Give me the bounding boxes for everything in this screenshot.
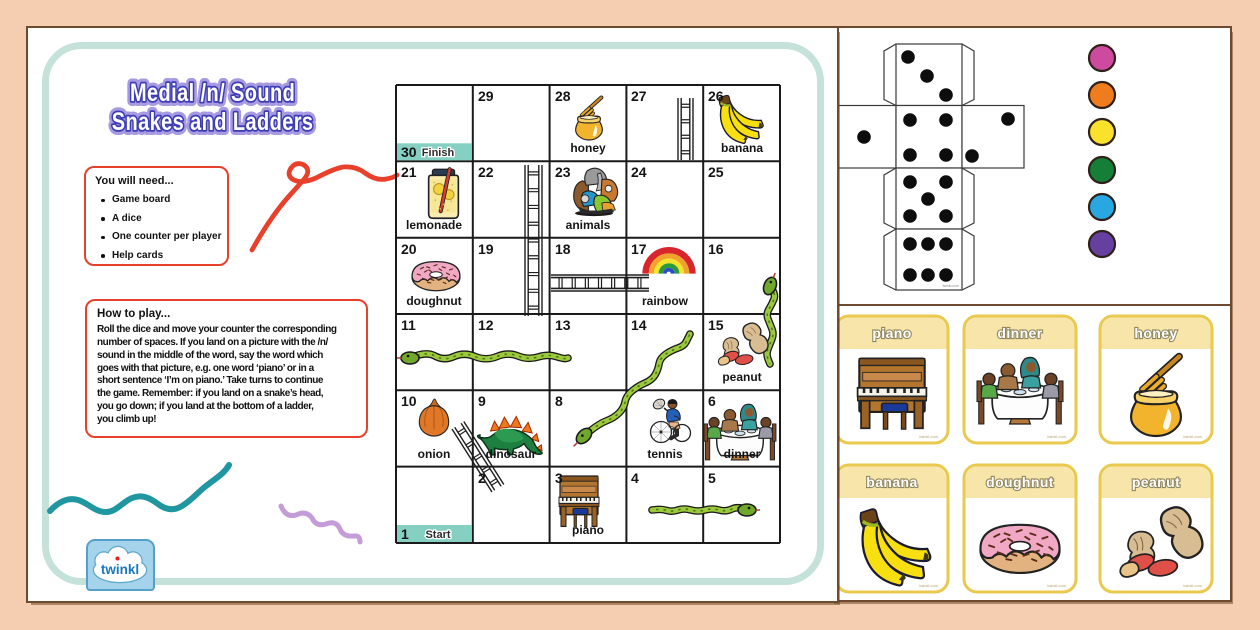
svg-text:2: 2 [478,470,486,486]
svg-text:26: 26 [708,88,724,104]
svg-text:18: 18 [555,241,571,257]
svg-text:Medial /n/ Sound: Medial /n/ Sound [130,79,295,107]
svg-text:twinkl.com: twinkl.com [919,434,938,439]
svg-text:doughnut: doughnut [406,294,461,308]
svg-text:10: 10 [401,393,417,409]
svg-text:23: 23 [555,164,571,180]
svg-text:5: 5 [708,470,716,486]
svg-text:29: 29 [478,88,494,104]
svg-text:twinkl.com: twinkl.com [1047,583,1066,588]
svg-text:banana: banana [866,474,917,490]
svg-text:8: 8 [555,393,563,409]
svg-text:27: 27 [631,88,647,104]
svg-text:1: 1 [401,526,409,542]
svg-text:24: 24 [631,164,647,180]
svg-text:dinner: dinner [997,325,1042,341]
svg-text:piano: piano [872,325,911,341]
svg-text:Start: Start [425,529,450,541]
svg-text:15: 15 [708,317,724,333]
svg-text:dinner: dinner [724,447,761,461]
svg-text:22: 22 [478,164,494,180]
svg-text:animals: animals [566,218,611,232]
svg-text:6: 6 [708,393,716,409]
svg-text:3: 3 [555,470,563,486]
svg-text:twinkl.com: twinkl.com [1183,583,1202,588]
svg-text:rainbow: rainbow [642,294,689,308]
svg-text:piano: piano [572,523,604,537]
svg-text:9: 9 [478,393,486,409]
svg-text:Snakes and Ladders: Snakes and Ladders [112,108,314,136]
svg-text:onion: onion [418,447,451,461]
svg-text:17: 17 [631,241,647,257]
svg-text:13: 13 [555,317,571,333]
svg-text:honey: honey [570,141,606,155]
svg-text:14: 14 [631,317,647,333]
svg-text:peanut: peanut [1132,474,1180,490]
svg-text:20: 20 [401,241,417,257]
svg-text:doughnut: doughnut [986,474,1054,490]
svg-text:peanut: peanut [722,370,761,384]
svg-text:twinkl.com: twinkl.com [943,284,959,288]
svg-text:twinkl.com: twinkl.com [1047,434,1066,439]
svg-text:4: 4 [631,470,639,486]
svg-text:honey: honey [1134,325,1177,341]
svg-text:16: 16 [708,241,724,257]
svg-text:banana: banana [721,141,763,155]
svg-text:dinosaur: dinosaur [486,447,537,461]
svg-text:19: 19 [478,241,494,257]
svg-text:twinkl: twinkl [101,562,139,577]
svg-text:12: 12 [478,317,494,333]
svg-text:lemonade: lemonade [406,218,462,232]
svg-text:twinkl.com: twinkl.com [1183,434,1202,439]
svg-text:11: 11 [401,317,416,333]
svg-text:tennis: tennis [647,447,683,461]
svg-text:28: 28 [555,88,571,104]
svg-text:twinkl.com: twinkl.com [919,583,938,588]
svg-text:25: 25 [708,164,724,180]
